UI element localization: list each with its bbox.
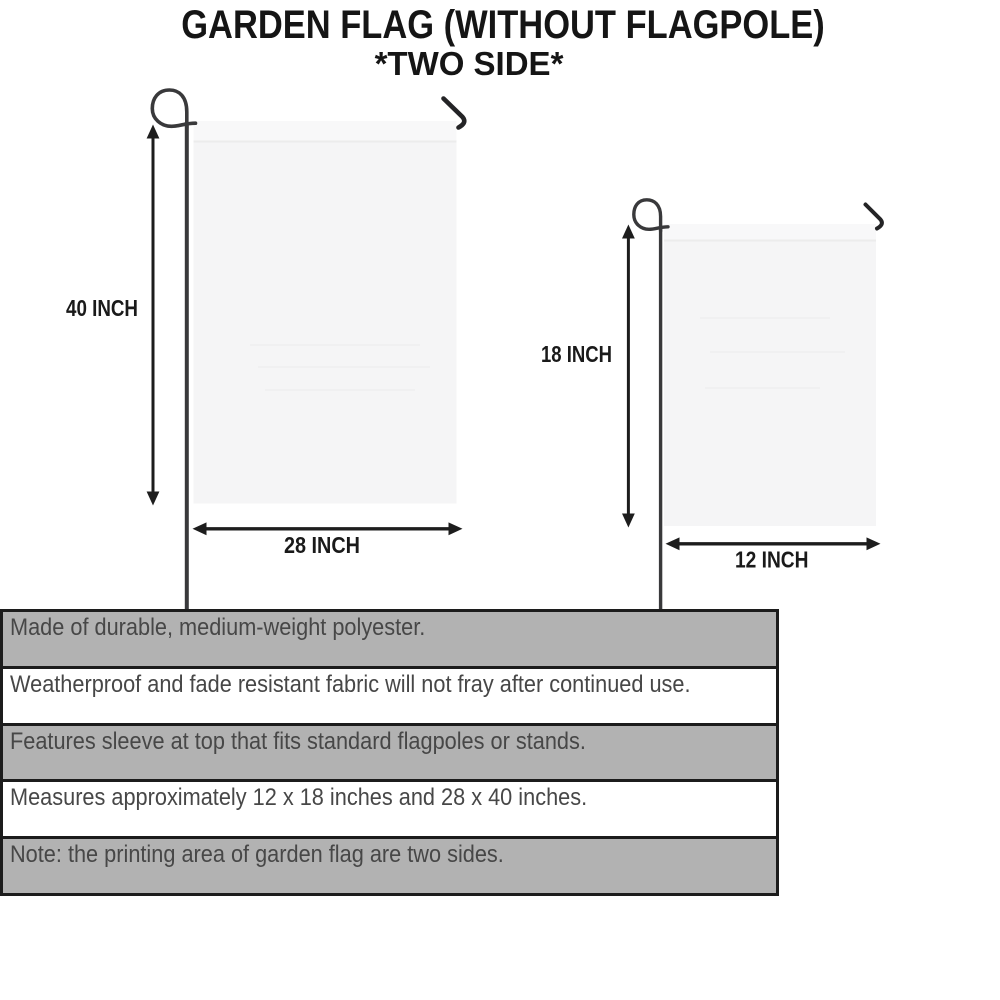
svg-text:12 INCH: 12 INCH [735, 547, 809, 573]
svg-text:40 INCH: 40 INCH [66, 295, 138, 321]
svg-text:18 INCH: 18 INCH [541, 341, 612, 367]
svg-text:28 INCH: 28 INCH [284, 532, 360, 558]
